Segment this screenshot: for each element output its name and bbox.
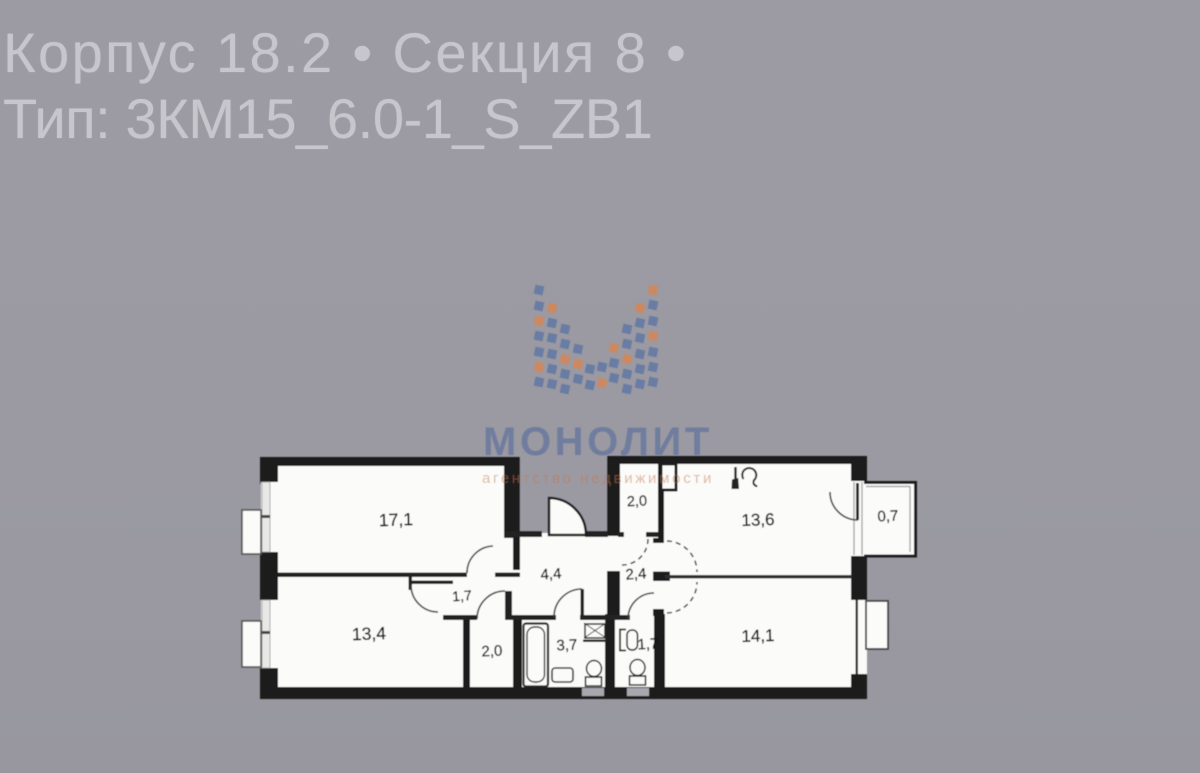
svg-text:13,4: 13,4 — [352, 623, 387, 644]
svg-text:2,0: 2,0 — [627, 493, 648, 510]
svg-text:1,7: 1,7 — [637, 635, 659, 653]
svg-text:1,7: 1,7 — [452, 587, 473, 604]
svg-text:3,7: 3,7 — [556, 636, 578, 654]
svg-text:2,4: 2,4 — [625, 565, 647, 583]
svg-text:0,7: 0,7 — [877, 507, 899, 525]
svg-text:14,1: 14,1 — [741, 626, 775, 646]
svg-text:4,4: 4,4 — [540, 565, 562, 583]
svg-text:17,1: 17,1 — [379, 509, 414, 530]
svg-text:2,0: 2,0 — [481, 642, 503, 660]
svg-text:13,6: 13,6 — [741, 510, 775, 530]
svg-text:МОНОЛИТ: МОНОЛИТ — [483, 420, 713, 464]
svg-text:агентство недвижимости: агентство недвижимости — [482, 470, 714, 487]
